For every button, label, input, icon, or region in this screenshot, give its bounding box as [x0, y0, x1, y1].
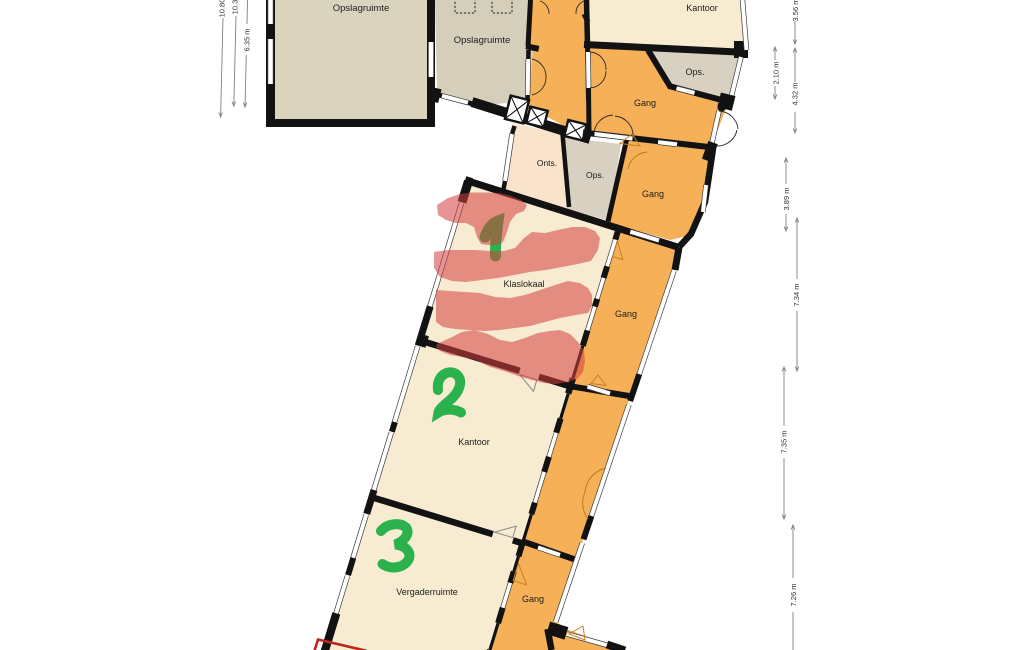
svg-text:Gang: Gang — [615, 309, 637, 319]
svg-text:7.34 m: 7.34 m — [792, 284, 801, 307]
svg-text:10.80: 10.80 — [218, 0, 227, 17]
svg-text:7.26 m: 7.26 m — [789, 584, 798, 607]
svg-text:3.89 m: 3.89 m — [782, 188, 791, 211]
svg-text:6.35 m: 6.35 m — [243, 29, 252, 52]
svg-text:7.35 m: 7.35 m — [779, 431, 788, 454]
svg-text:Gang: Gang — [642, 189, 664, 199]
svg-text:Opslagruimte: Opslagruimte — [333, 3, 390, 14]
svg-text:Vergaderruimte: Vergaderruimte — [396, 587, 458, 597]
svg-text:Gang: Gang — [634, 98, 656, 108]
svg-text:Ops.: Ops. — [586, 170, 604, 180]
svg-text:10.3: 10.3 — [231, 0, 240, 14]
svg-text:Ops.: Ops. — [685, 67, 704, 77]
svg-text:Kantoor: Kantoor — [686, 3, 718, 13]
svg-text:Kantoor: Kantoor — [458, 437, 490, 447]
svg-text:Klaslokaal: Klaslokaal — [503, 279, 544, 289]
svg-text:4.32 m: 4.32 m — [790, 83, 799, 106]
svg-text:Opslagruimte: Opslagruimte — [454, 35, 511, 46]
svg-text:Onts.: Onts. — [537, 158, 557, 168]
svg-text:3.56 m: 3.56 m — [791, 0, 800, 21]
svg-text:2.10 m: 2.10 m — [771, 62, 780, 85]
svg-text:Gang: Gang — [522, 594, 544, 604]
